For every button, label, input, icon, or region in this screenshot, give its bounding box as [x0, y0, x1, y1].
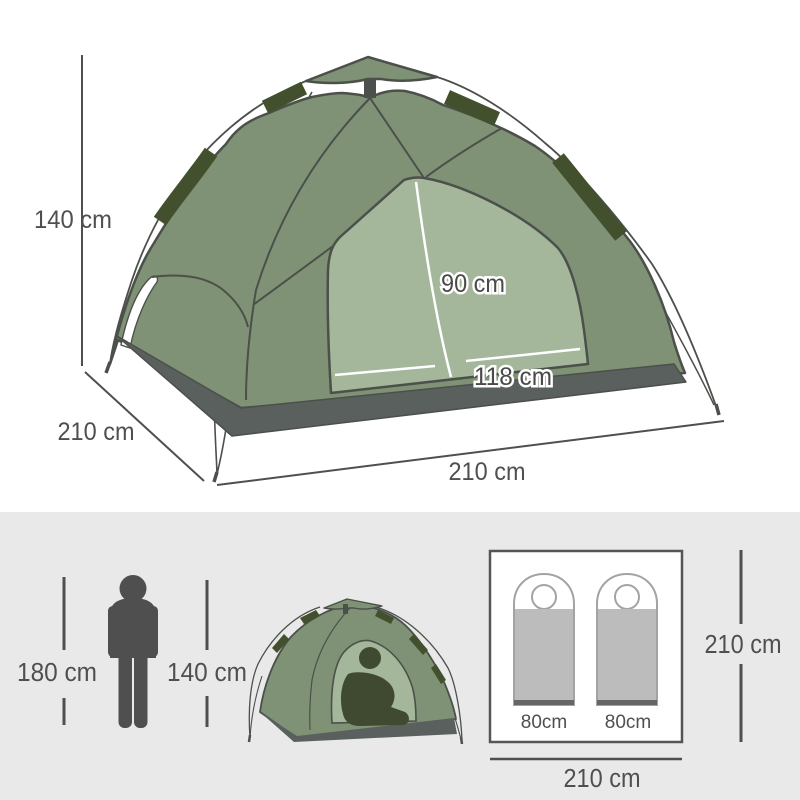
- svg-text:210 cm: 210 cm: [705, 631, 782, 659]
- svg-text:210 cm: 210 cm: [564, 765, 641, 793]
- svg-text:80cm: 80cm: [605, 712, 651, 733]
- svg-text:80cm: 80cm: [521, 712, 567, 733]
- svg-text:210 cm: 210 cm: [449, 458, 526, 486]
- svg-text:180 cm: 180 cm: [17, 659, 97, 687]
- svg-text:210 cm: 210 cm: [58, 418, 135, 446]
- svg-text:90 cm: 90 cm: [441, 270, 505, 298]
- svg-text:140 cm: 140 cm: [34, 206, 112, 234]
- svg-text:140 cm: 140 cm: [167, 659, 247, 687]
- svg-text:118 cm: 118 cm: [474, 363, 552, 391]
